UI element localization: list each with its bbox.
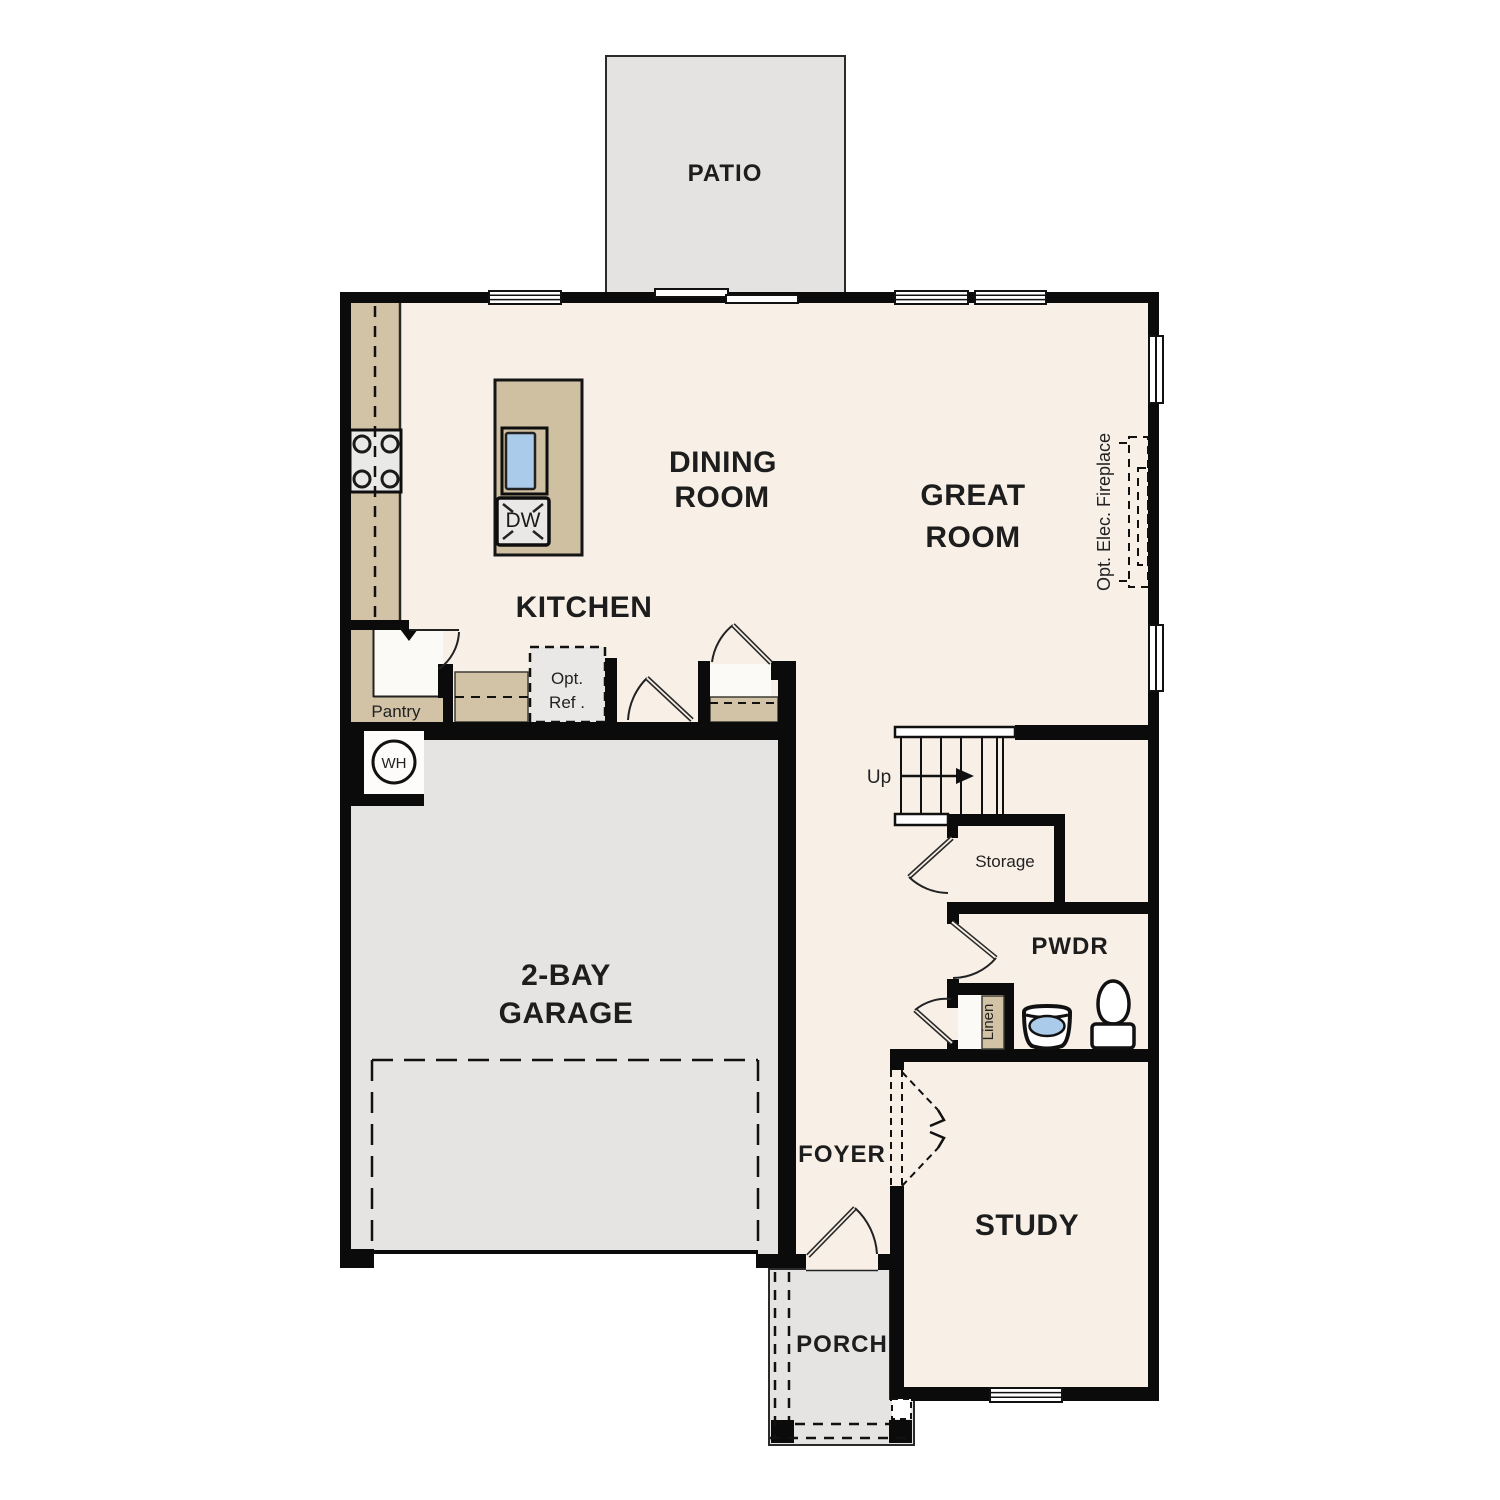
svg-text:STUDY: STUDY [975, 1209, 1079, 1242]
svg-text:PORCH: PORCH [796, 1331, 888, 1358]
svg-text:Up: Up [867, 767, 891, 788]
svg-text:Pantry: Pantry [371, 702, 421, 721]
svg-text:GARAGE: GARAGE [499, 997, 634, 1030]
svg-text:DINING: DINING [669, 446, 777, 479]
svg-text:Linen: Linen [980, 1004, 997, 1041]
svg-text:PWDR: PWDR [1031, 933, 1108, 960]
svg-text:DW: DW [506, 509, 541, 532]
svg-text:ROOM: ROOM [674, 481, 769, 514]
svg-text:KITCHEN: KITCHEN [516, 591, 653, 624]
svg-text:Ref .: Ref . [549, 693, 585, 712]
svg-text:GREAT: GREAT [920, 479, 1025, 512]
svg-text:WH: WH [382, 755, 407, 772]
svg-text:Opt.: Opt. [551, 669, 583, 688]
svg-text:Storage: Storage [975, 852, 1035, 871]
svg-text:PATIO: PATIO [688, 160, 763, 187]
svg-text:ROOM: ROOM [925, 521, 1020, 554]
svg-text:FOYER: FOYER [798, 1141, 886, 1168]
svg-text:Opt. Elec. Fireplace: Opt. Elec. Fireplace [1094, 433, 1114, 591]
svg-text:2-BAY: 2-BAY [521, 959, 611, 992]
